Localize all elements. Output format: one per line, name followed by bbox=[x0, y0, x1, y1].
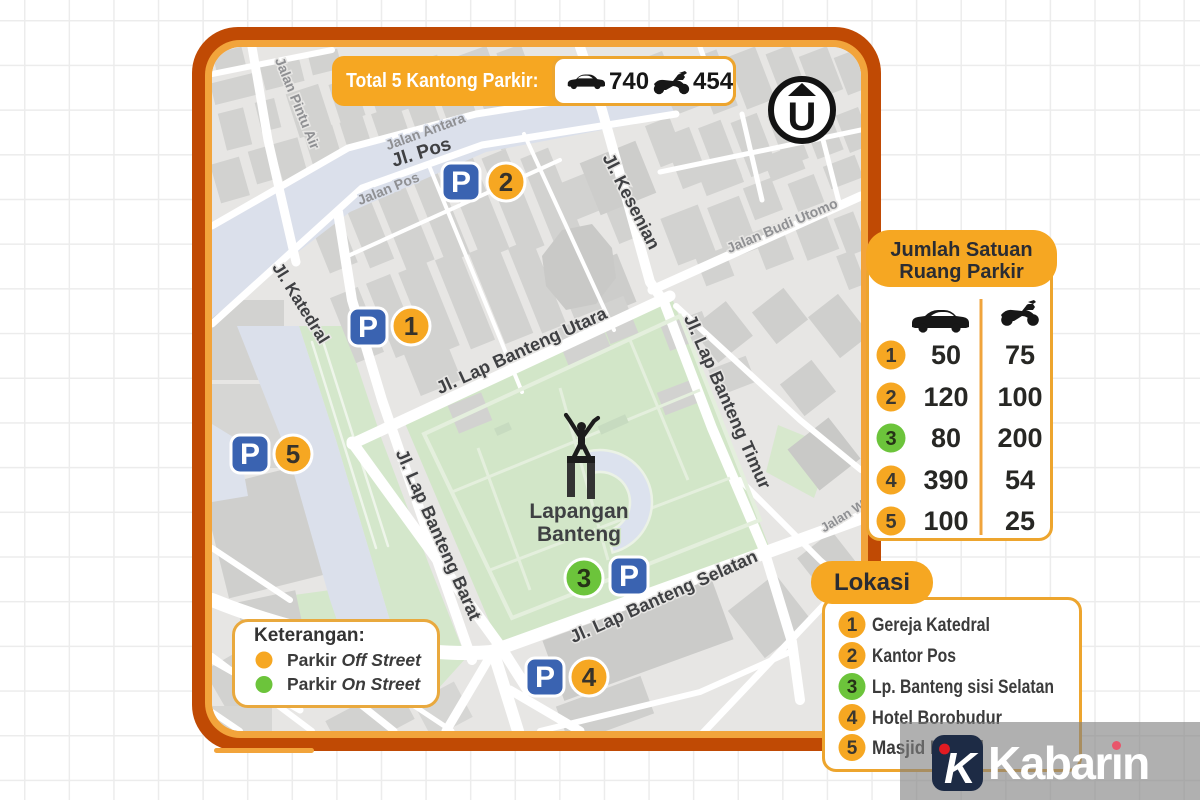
svg-text:5: 5 bbox=[847, 738, 858, 759]
svg-text:390: 390 bbox=[923, 465, 968, 495]
svg-text:2: 2 bbox=[499, 167, 513, 197]
svg-text:5: 5 bbox=[885, 511, 896, 533]
svg-text:Kantor Pos: Kantor Pos bbox=[872, 646, 956, 667]
svg-text:80: 80 bbox=[931, 423, 961, 453]
svg-text:2: 2 bbox=[847, 646, 858, 667]
svg-text:200: 200 bbox=[997, 423, 1042, 453]
svg-text:Parkir Off Street: Parkir Off Street bbox=[287, 650, 422, 670]
svg-text:25: 25 bbox=[1005, 506, 1035, 536]
svg-text:120: 120 bbox=[923, 382, 968, 412]
svg-text:75: 75 bbox=[1005, 340, 1035, 370]
svg-text:4: 4 bbox=[582, 662, 597, 692]
svg-text:4: 4 bbox=[847, 708, 858, 729]
svg-text:Gereja Katedral: Gereja Katedral bbox=[872, 615, 990, 636]
svg-text:54: 54 bbox=[1005, 465, 1035, 495]
svg-text:50: 50 bbox=[931, 340, 961, 370]
svg-text:2: 2 bbox=[885, 387, 896, 409]
svg-text:1: 1 bbox=[404, 311, 418, 341]
svg-text:454: 454 bbox=[693, 68, 734, 95]
svg-text:5: 5 bbox=[286, 439, 300, 469]
svg-text:P: P bbox=[240, 438, 260, 471]
svg-text:1: 1 bbox=[847, 615, 858, 636]
svg-text:Lapangan: Lapangan bbox=[529, 500, 628, 523]
svg-text:100: 100 bbox=[923, 506, 968, 536]
svg-text:Banteng: Banteng bbox=[537, 523, 621, 546]
svg-text:P: P bbox=[451, 166, 471, 199]
svg-text:100: 100 bbox=[997, 382, 1042, 412]
svg-text:P: P bbox=[619, 560, 639, 593]
svg-text:740: 740 bbox=[609, 68, 649, 95]
svg-text:3: 3 bbox=[847, 677, 858, 698]
svg-text:3: 3 bbox=[885, 428, 896, 450]
svg-text:4: 4 bbox=[885, 470, 897, 492]
svg-text:Lp. Banteng sisi Selatan: Lp. Banteng sisi Selatan bbox=[872, 677, 1054, 698]
svg-text:Keterangan:: Keterangan: bbox=[254, 625, 365, 646]
svg-text:U: U bbox=[788, 95, 817, 139]
svg-text:Parkir On Street: Parkir On Street bbox=[287, 674, 421, 694]
svg-text:P: P bbox=[358, 311, 378, 344]
svg-text:P: P bbox=[535, 661, 555, 694]
svg-text:3: 3 bbox=[577, 563, 591, 593]
svg-text:K: K bbox=[944, 744, 979, 791]
svg-text:1: 1 bbox=[885, 345, 896, 367]
